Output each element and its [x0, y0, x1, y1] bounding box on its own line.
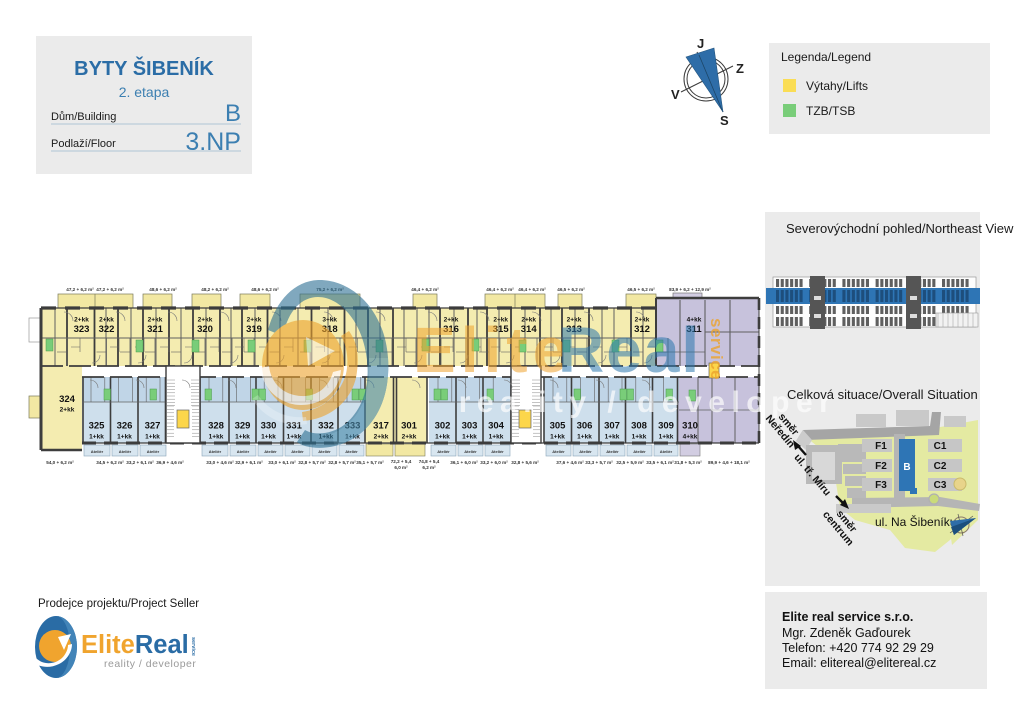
svg-text:328: 328	[208, 421, 224, 432]
svg-text:308: 308	[631, 421, 647, 432]
svg-text:46,4 + 6,2 m²: 46,4 + 6,2 m²	[518, 287, 546, 292]
svg-text:Severovýchodní pohled/Northeas: Severovýchodní pohled/Northeast View	[786, 221, 1014, 236]
svg-text:3.NP: 3.NP	[185, 128, 241, 156]
svg-text:Elite real service s.r.o.: Elite real service s.r.o.	[782, 610, 913, 624]
svg-text:V: V	[671, 87, 680, 102]
svg-text:32,9 + 6,1 m²: 32,9 + 6,1 m²	[235, 460, 263, 465]
svg-text:BYTY ŠIBENÍK: BYTY ŠIBENÍK	[74, 56, 214, 80]
svg-text:72,2 + 5,4: 72,2 + 5,4	[391, 459, 412, 464]
svg-text:33,2 + 6,0 m²: 33,2 + 6,0 m²	[480, 460, 508, 465]
svg-text:1+kk: 1+kk	[659, 434, 674, 441]
svg-text:Ateliér: Ateliér	[237, 449, 250, 454]
svg-text:Ateliér: Ateliér	[660, 449, 673, 454]
svg-text:Legenda/Legend: Legenda/Legend	[781, 50, 871, 64]
svg-text:1+kk: 1+kk	[209, 434, 224, 441]
svg-text:1+kk: 1+kk	[261, 434, 276, 441]
svg-text:1+kk: 1+kk	[235, 434, 250, 441]
svg-text:325: 325	[89, 421, 106, 432]
svg-text:332: 332	[318, 421, 334, 432]
svg-text:32,8 + 5,6 m²: 32,8 + 5,6 m²	[511, 460, 539, 465]
svg-text:service: service	[190, 637, 196, 656]
svg-text:326: 326	[117, 421, 133, 432]
svg-text:2+kk: 2+kk	[402, 434, 417, 441]
svg-text:36,9 + 4,6 m²: 36,9 + 4,6 m²	[156, 460, 184, 465]
svg-text:Real: Real	[558, 314, 701, 386]
svg-text:reality / developer: reality / developer	[104, 658, 196, 670]
svg-text:1+kk: 1+kk	[577, 434, 592, 441]
svg-text:2+kk: 2+kk	[74, 317, 89, 324]
svg-text:1+kk: 1+kk	[489, 434, 504, 441]
svg-text:304: 304	[488, 421, 505, 432]
svg-text:48,6 + 6,2 m²: 48,6 + 6,2 m²	[251, 287, 279, 292]
svg-text:305: 305	[550, 421, 567, 432]
svg-text:Z: Z	[736, 61, 744, 76]
svg-text:Ateliér: Ateliér	[119, 449, 132, 454]
svg-text:Ateliér: Ateliér	[91, 449, 104, 454]
svg-text:J: J	[697, 36, 704, 51]
svg-text:48,6 + 6,2 m²: 48,6 + 6,2 m²	[149, 287, 177, 292]
svg-text:B: B	[225, 100, 241, 127]
svg-text:46,5 + 6,2 m²: 46,5 + 6,2 m²	[627, 287, 655, 292]
svg-text:310: 310	[682, 421, 698, 432]
svg-text:1+kk: 1+kk	[145, 434, 160, 441]
svg-text:32,8 + 5,7 m²: 32,8 + 5,7 m²	[298, 460, 326, 465]
svg-text:46,4 + 6,2 m²: 46,4 + 6,2 m²	[486, 287, 514, 292]
svg-text:1+kk: 1+kk	[117, 434, 132, 441]
svg-text:Telefon: +420 774 92 29 29: Telefon: +420 774 92 29 29	[782, 641, 934, 655]
svg-text:33,0 + 4,6 m²: 33,0 + 4,6 m²	[206, 460, 234, 465]
svg-text:36,1 + 6,0 m²: 36,1 + 6,0 m²	[450, 460, 478, 465]
svg-text:2. etapa: 2. etapa	[119, 84, 170, 100]
svg-text:Ateliér: Ateliér	[579, 449, 592, 454]
svg-text:2+kk: 2+kk	[148, 317, 163, 324]
svg-text:47,2 + 6,2 m²: 47,2 + 6,2 m²	[66, 287, 94, 292]
svg-text:306: 306	[577, 421, 593, 432]
svg-text:46,4 + 6,2 m²: 46,4 + 6,2 m²	[411, 287, 439, 292]
svg-text:1+kk: 1+kk	[89, 434, 104, 441]
svg-text:33,5 + 6,1 m²: 33,5 + 6,1 m²	[646, 460, 674, 465]
svg-text:327: 327	[145, 421, 161, 432]
svg-text:303: 303	[462, 421, 478, 432]
svg-text:Ateliér: Ateliér	[345, 449, 358, 454]
svg-text:74,8 + 5,4: 74,8 + 5,4	[419, 459, 440, 464]
svg-text:Ateliér: Ateliér	[606, 449, 619, 454]
svg-text:32,5 + 5,9 m²: 32,5 + 5,9 m²	[616, 460, 644, 465]
svg-text:2+kk: 2+kk	[198, 317, 213, 324]
svg-text:2+kk: 2+kk	[247, 317, 262, 324]
svg-text:Elite: Elite	[413, 314, 573, 386]
svg-text:329: 329	[235, 421, 251, 432]
svg-text:2+kk: 2+kk	[99, 317, 114, 324]
svg-text:301: 301	[401, 421, 418, 432]
svg-text:324: 324	[59, 394, 76, 405]
svg-text:302: 302	[435, 421, 451, 432]
svg-text:48,2 + 6,2 m²: 48,2 + 6,2 m²	[201, 287, 229, 292]
svg-text:34,5 + 6,2 m²: 34,5 + 6,2 m²	[96, 460, 124, 465]
svg-text:Dům/Building: Dům/Building	[51, 111, 116, 123]
svg-text:F3: F3	[875, 480, 887, 491]
svg-text:Ateliér: Ateliér	[147, 449, 160, 454]
svg-text:37,6 + 4,6 m²: 37,6 + 4,6 m²	[556, 460, 584, 465]
svg-text:1+kk: 1+kk	[632, 434, 647, 441]
svg-text:Email: elitereal@elitereal.cz: Email: elitereal@elitereal.cz	[782, 656, 936, 670]
svg-text:C1: C1	[934, 441, 947, 452]
svg-text:322: 322	[99, 324, 115, 335]
svg-text:ul. Na Šibeníku: ul. Na Šibeníku	[875, 514, 956, 529]
svg-text:Ateliér: Ateliér	[318, 449, 331, 454]
svg-text:Ateliér: Ateliér	[491, 449, 504, 454]
svg-text:309: 309	[658, 421, 674, 432]
svg-text:3+kk: 3+kk	[322, 317, 337, 324]
svg-text:Ateliér: Ateliér	[552, 449, 565, 454]
svg-text:46,5 + 6,2 m²: 46,5 + 6,2 m²	[557, 287, 585, 292]
svg-text:321: 321	[147, 324, 164, 335]
svg-text:330: 330	[261, 421, 277, 432]
svg-text:B: B	[903, 462, 910, 473]
svg-text:Mgr. Zdeněk Gaďourek: Mgr. Zdeněk Gaďourek	[782, 626, 911, 640]
svg-text:EliteReal: EliteReal	[81, 631, 189, 659]
svg-text:320: 320	[197, 324, 213, 335]
svg-text:1+kk: 1+kk	[435, 434, 450, 441]
svg-text:F2: F2	[875, 461, 887, 472]
svg-text:6,2 m²: 6,2 m²	[422, 465, 436, 470]
svg-text:Ateliér: Ateliér	[209, 449, 222, 454]
svg-text:1+kk: 1+kk	[462, 434, 477, 441]
svg-text:317: 317	[373, 421, 389, 432]
svg-text:1+kk: 1+kk	[550, 434, 565, 441]
svg-text:33,0 + 6,1 m²: 33,0 + 6,1 m²	[268, 460, 296, 465]
svg-text:1+kk: 1+kk	[605, 434, 620, 441]
svg-text:C2: C2	[934, 461, 947, 472]
svg-text:Podlaží/Floor: Podlaží/Floor	[51, 138, 116, 150]
svg-text:32,8 + 5,7 m²: 32,8 + 5,7 m²	[328, 460, 356, 465]
svg-text:service: service	[707, 318, 726, 380]
svg-text:2+kk: 2+kk	[374, 434, 389, 441]
svg-text:Ateliér: Ateliér	[633, 449, 646, 454]
svg-text:Ateliér: Ateliér	[437, 449, 450, 454]
svg-text:33,2 + 6,1 m²: 33,2 + 6,1 m²	[126, 460, 154, 465]
svg-text:Ateliér: Ateliér	[264, 449, 277, 454]
svg-text:47,2 + 6,2 m²: 47,2 + 6,2 m²	[96, 287, 124, 292]
svg-text:33,3 + 5,7 m²: 33,3 + 5,7 m²	[585, 460, 613, 465]
svg-text:4+kk: 4+kk	[683, 434, 698, 441]
svg-text:F1: F1	[875, 441, 887, 452]
svg-text:31,8 + 5,3 m²: 31,8 + 5,3 m²	[674, 460, 702, 465]
svg-text:319: 319	[246, 324, 262, 335]
svg-text:89,9 + 4,6 + 18,1 m²: 89,9 + 4,6 + 18,1 m²	[708, 460, 750, 465]
svg-text:Celková situace/Overall Situat: Celková situace/Overall Situation	[787, 387, 978, 402]
svg-text:TZB/TSB: TZB/TSB	[806, 104, 855, 118]
svg-text:Ateliér: Ateliér	[291, 449, 304, 454]
svg-text:S: S	[720, 113, 729, 128]
svg-text:307: 307	[604, 421, 620, 432]
svg-text:83,9 + 6,2 + 12,9 m²: 83,9 + 6,2 + 12,9 m²	[669, 287, 711, 292]
svg-text:323: 323	[74, 324, 90, 335]
svg-text:Výtahy/Lifts: Výtahy/Lifts	[806, 79, 868, 93]
svg-text:C3: C3	[934, 480, 947, 491]
svg-text:2+kk: 2+kk	[60, 407, 75, 414]
svg-text:35,1 + 5,7 m²: 35,1 + 5,7 m²	[356, 460, 384, 465]
svg-text:Ateliér: Ateliér	[464, 449, 477, 454]
svg-text:6,0 m²: 6,0 m²	[394, 465, 408, 470]
svg-text:Prodejce projektu/Project Sell: Prodejce projektu/Project Seller	[38, 598, 199, 610]
svg-text:54,0 + 6,2 m²: 54,0 + 6,2 m²	[46, 460, 74, 465]
